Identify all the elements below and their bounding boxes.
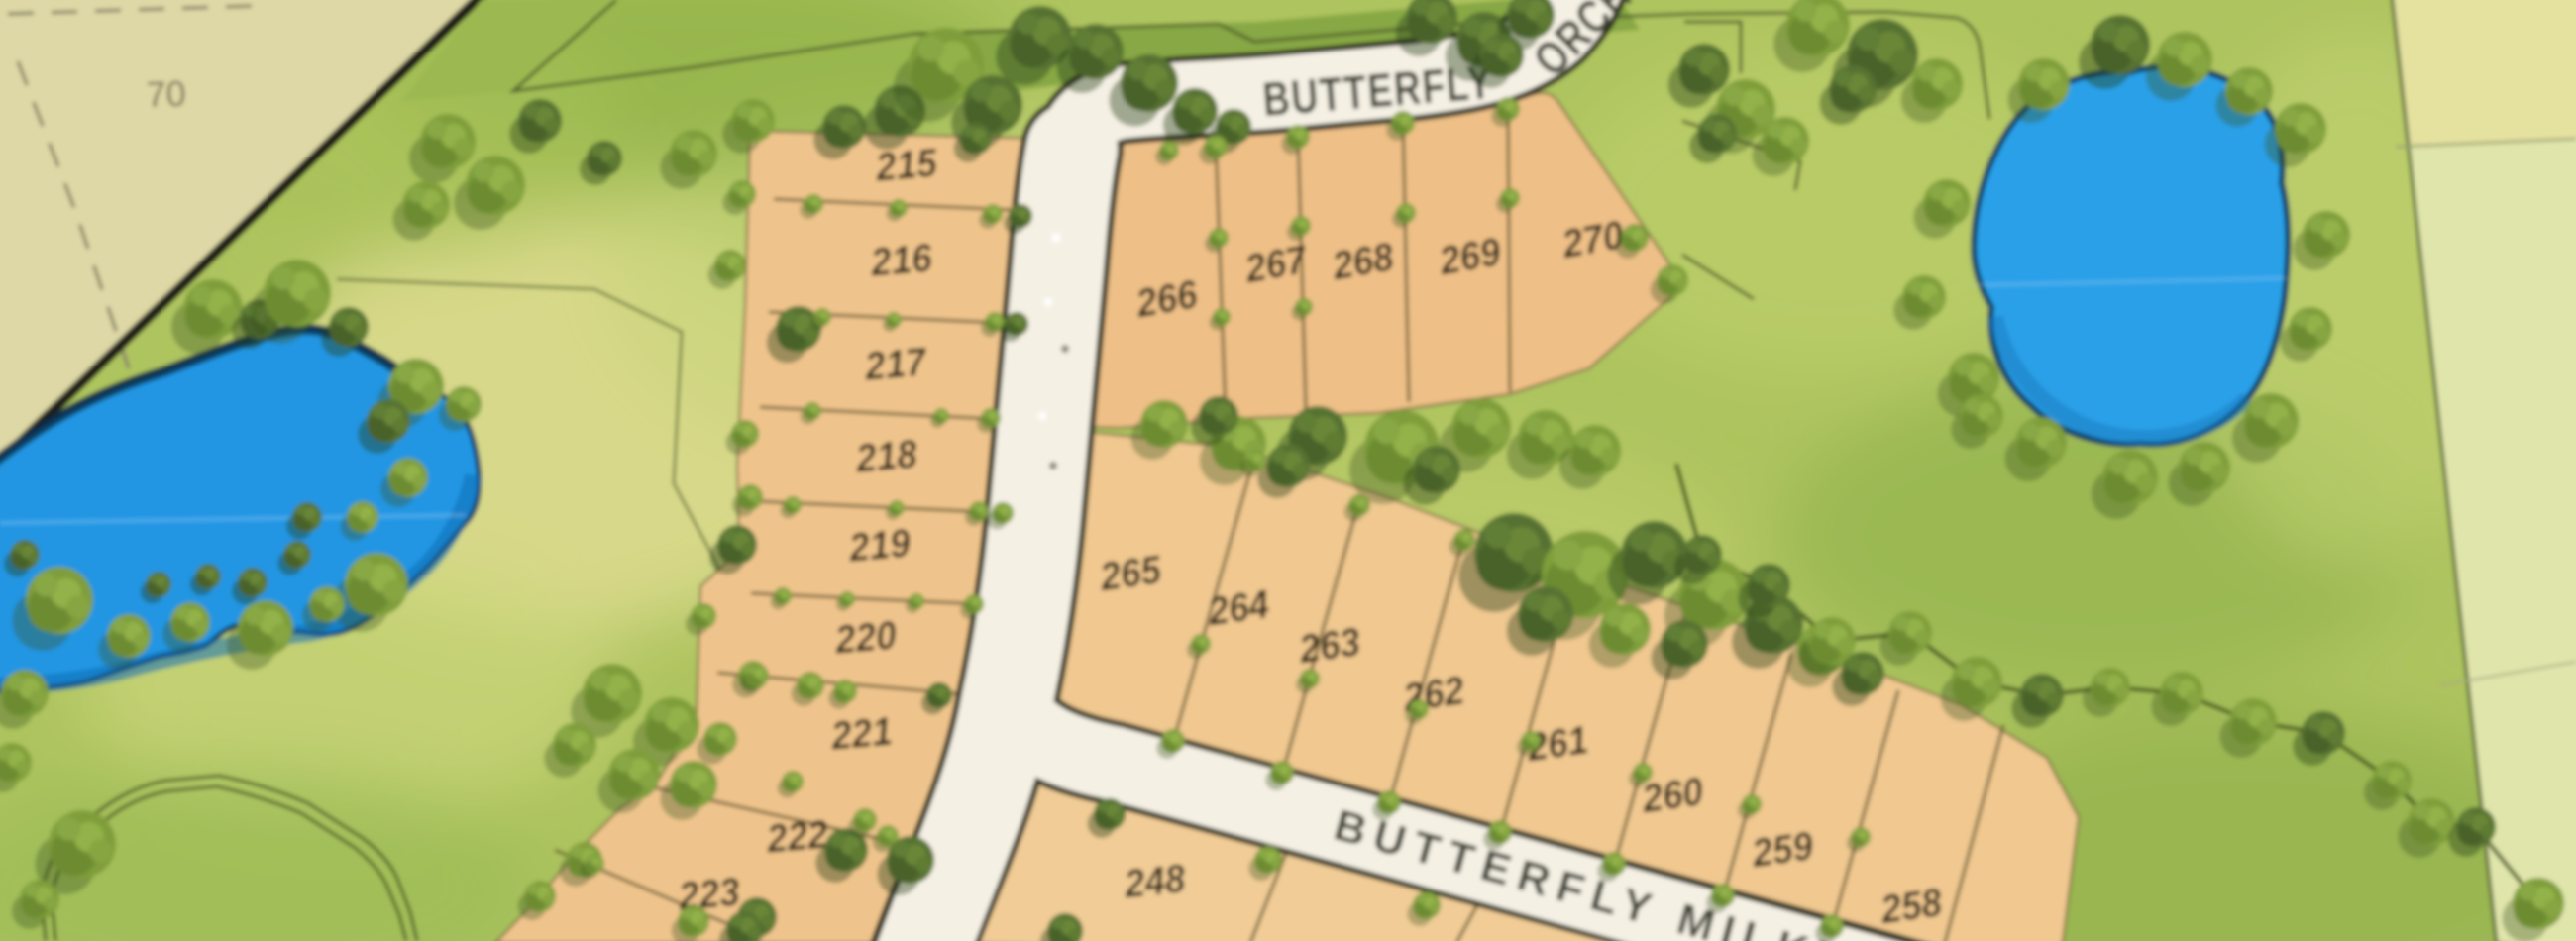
svg-text:264: 264	[1205, 582, 1272, 635]
svg-text:248: 248	[1122, 857, 1188, 907]
svg-text:263: 263	[1296, 620, 1363, 673]
svg-text:70: 70	[146, 73, 186, 115]
svg-text:259: 259	[1749, 824, 1817, 877]
svg-text:217: 217	[862, 340, 929, 389]
svg-text:218: 218	[853, 432, 919, 481]
svg-text:220: 220	[832, 613, 898, 663]
svg-text:221: 221	[828, 709, 894, 759]
svg-text:219: 219	[846, 521, 912, 571]
svg-text:258: 258	[1878, 881, 1946, 933]
svg-text:216: 216	[868, 236, 934, 285]
svg-text:265: 265	[1097, 548, 1165, 600]
